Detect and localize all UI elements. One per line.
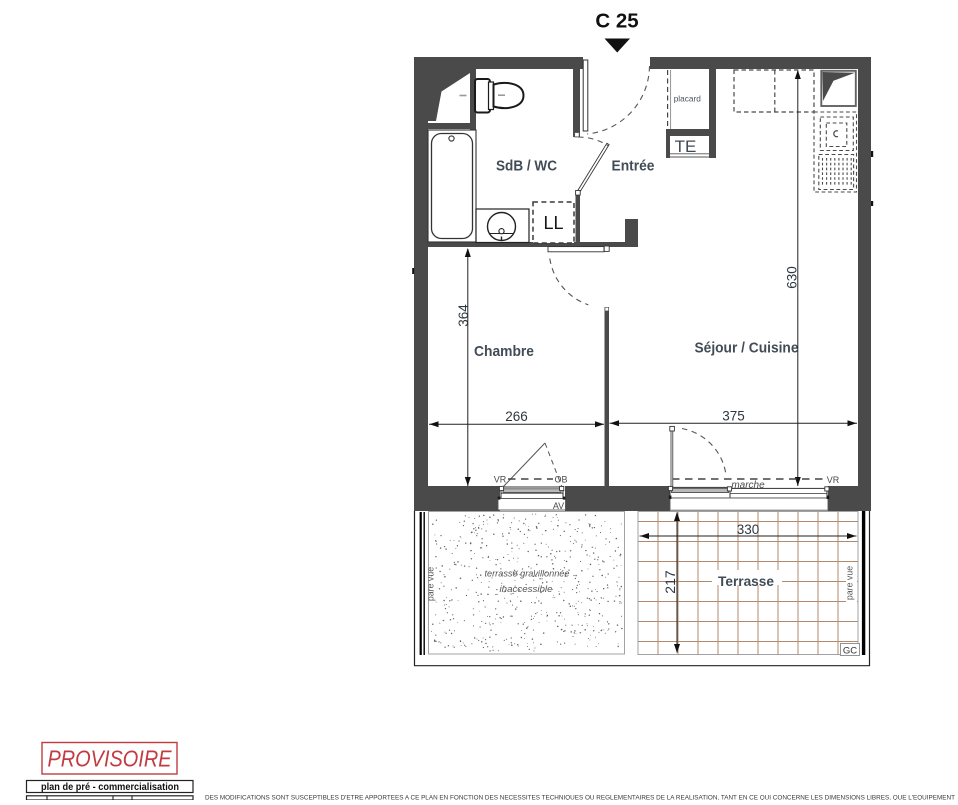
svg-text:VR: VR	[494, 474, 507, 484]
svg-text:VR: VR	[827, 475, 840, 485]
svg-text:364: 364	[456, 304, 471, 327]
svg-text:C 25: C 25	[595, 10, 638, 33]
svg-text:SdB / WC: SdB / WC	[496, 159, 557, 175]
svg-text:266: 266	[505, 409, 528, 424]
svg-text:Séjour / Cuisine: Séjour / Cuisine	[695, 341, 799, 357]
svg-text:AV: AV	[553, 501, 564, 511]
svg-text:TE: TE	[675, 137, 697, 156]
svg-text:Terrasse: Terrasse	[718, 574, 774, 590]
svg-text:terrasse gravillonnée: terrasse gravillonnée	[485, 568, 570, 579]
svg-text:375: 375	[722, 409, 745, 424]
svg-text:DES MODIFICATIONS SONT SUSCEPT: DES MODIFICATIONS SONT SUSCEPTIBLES D'ET…	[205, 796, 955, 801]
svg-text:330: 330	[737, 522, 760, 537]
svg-text:inaccessible: inaccessible	[500, 583, 553, 594]
svg-text:placard: placard	[674, 93, 702, 103]
svg-text:OB: OB	[554, 474, 567, 484]
svg-text:GC: GC	[843, 646, 857, 657]
svg-text:plan de pré - commercialisatio: plan de pré - commercialisation	[41, 782, 179, 793]
svg-text:Entrée: Entrée	[612, 159, 655, 175]
svg-text:217: 217	[662, 570, 678, 594]
svg-text:LL: LL	[543, 213, 563, 233]
svg-text:marche: marche	[731, 480, 765, 491]
svg-text:pare vue: pare vue	[844, 566, 854, 600]
svg-text:pare vue: pare vue	[426, 567, 436, 601]
svg-text:630: 630	[784, 266, 799, 289]
svg-text:PROVISOIRE: PROVISOIRE	[48, 746, 172, 772]
svg-text:Chambre: Chambre	[474, 343, 534, 360]
